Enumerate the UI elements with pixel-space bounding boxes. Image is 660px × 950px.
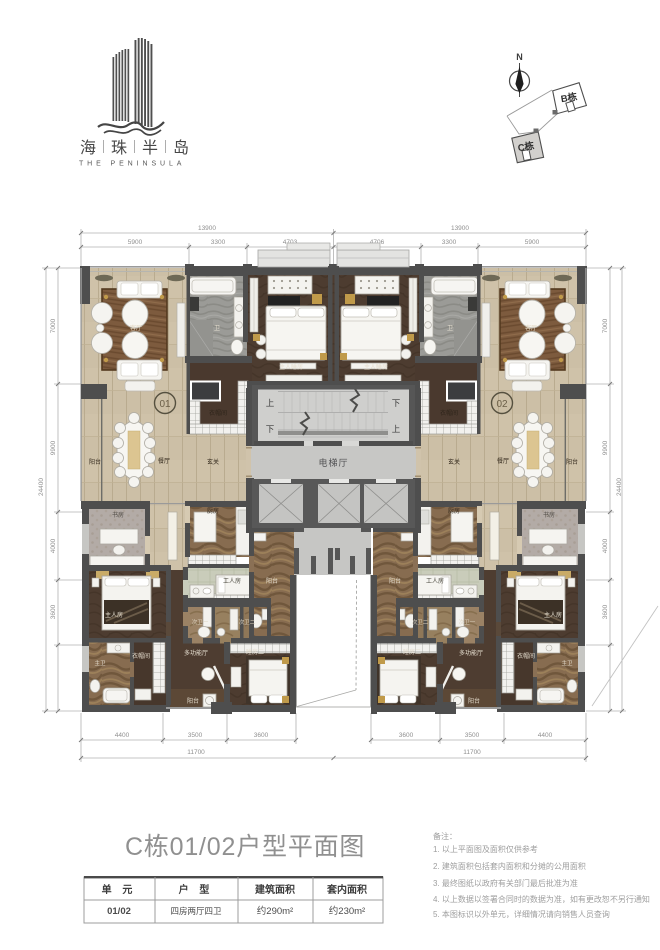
svg-text:7000: 7000 <box>50 318 57 333</box>
svg-text:厨房: 厨房 <box>448 507 460 515</box>
svg-text:1. 以上平面图及面积仅供参考: 1. 以上平面图及面积仅供参考 <box>433 844 538 854</box>
svg-text:玄关: 玄关 <box>448 458 460 466</box>
svg-text:4400: 4400 <box>538 732 553 739</box>
svg-text:约290m²: 约290m² <box>257 905 293 917</box>
svg-text:主人睡房: 主人睡房 <box>279 363 303 371</box>
svg-text:次卫一: 次卫一 <box>459 618 476 626</box>
svg-text:2. 建筑面积包括套内面积和分摊的公用面积: 2. 建筑面积包括套内面积和分摊的公用面积 <box>433 861 586 871</box>
svg-text:约230m²: 约230m² <box>329 905 365 917</box>
svg-text:次卫二: 次卫二 <box>412 618 429 626</box>
svg-text:5900: 5900 <box>525 239 540 246</box>
svg-text:睡房二: 睡房二 <box>403 648 421 656</box>
svg-text:单 元: 单 元 <box>102 883 137 896</box>
svg-text:5. 本图标识以外单元，详细情况请向销售人员查询: 5. 本图标识以外单元，详细情况请向销售人员查询 <box>433 909 610 919</box>
svg-text:3600: 3600 <box>602 604 609 619</box>
svg-text:主人房: 主人房 <box>544 611 562 619</box>
svg-text:11700: 11700 <box>187 749 205 756</box>
svg-text:衣帽间: 衣帽间 <box>132 652 150 660</box>
svg-text:餐厅: 餐厅 <box>497 457 509 465</box>
svg-text:餐厅: 餐厅 <box>158 457 170 465</box>
svg-text:上: 上 <box>266 398 275 408</box>
svg-text:客厅: 客厅 <box>525 324 537 332</box>
svg-text:工人房: 工人房 <box>426 577 444 585</box>
svg-text:次卫一: 次卫一 <box>192 618 209 626</box>
svg-text:5900: 5900 <box>128 239 143 246</box>
svg-text:衣帽间: 衣帽间 <box>440 409 458 417</box>
svg-text:四房两厅四卫: 四房两厅四卫 <box>170 906 222 916</box>
svg-text:阳台: 阳台 <box>187 697 199 705</box>
svg-text:阳台: 阳台 <box>566 458 578 466</box>
svg-text:海珠半岛: 海珠半岛 <box>80 139 204 157</box>
svg-text:9900: 9900 <box>50 440 57 455</box>
svg-text:户 型: 户 型 <box>178 883 214 896</box>
svg-text:套内面积: 套内面积 <box>326 883 367 896</box>
svg-text:3300: 3300 <box>442 239 457 246</box>
svg-text:4400: 4400 <box>115 732 130 739</box>
svg-text:3600: 3600 <box>50 604 57 619</box>
svg-text:书房: 书房 <box>543 511 555 519</box>
svg-text:衣帽间: 衣帽间 <box>517 652 535 660</box>
svg-text:4000: 4000 <box>50 538 57 553</box>
svg-text:9900: 9900 <box>602 440 609 455</box>
svg-text:3300: 3300 <box>211 239 226 246</box>
svg-text:上: 上 <box>392 424 401 434</box>
svg-text:阳台: 阳台 <box>266 577 278 585</box>
svg-text:24400: 24400 <box>38 478 45 496</box>
svg-text:书房: 书房 <box>112 511 124 519</box>
svg-text:客厅: 客厅 <box>130 324 142 332</box>
svg-text:01: 01 <box>159 399 171 410</box>
svg-text:01/02: 01/02 <box>107 906 131 917</box>
svg-text:3600: 3600 <box>254 732 269 739</box>
svg-text:阳台: 阳台 <box>468 697 480 705</box>
svg-text:3600: 3600 <box>399 732 414 739</box>
svg-text:备注：: 备注： <box>433 831 457 841</box>
svg-text:玄关: 玄关 <box>207 458 219 466</box>
svg-text:主卫: 主卫 <box>561 659 573 667</box>
svg-text:THE PENINSULA: THE PENINSULA <box>79 161 185 168</box>
svg-text:3500: 3500 <box>188 732 203 739</box>
svg-text:卫: 卫 <box>214 325 220 332</box>
svg-text:7000: 7000 <box>602 318 609 333</box>
svg-text:4000: 4000 <box>602 538 609 553</box>
svg-text:睡房二: 睡房二 <box>246 648 264 656</box>
svg-text:主人睡房: 主人睡房 <box>364 363 388 371</box>
svg-text:厨房: 厨房 <box>207 507 219 515</box>
svg-text:下: 下 <box>266 424 275 434</box>
svg-text:主人房: 主人房 <box>105 611 123 619</box>
svg-text:11700: 11700 <box>463 749 481 756</box>
svg-text:C栋01/02户型平面图: C栋01/02户型平面图 <box>125 833 365 861</box>
svg-text:阳台: 阳台 <box>389 577 401 585</box>
svg-text:13900: 13900 <box>451 225 469 232</box>
svg-text:多功能厅: 多功能厅 <box>459 649 483 657</box>
svg-text:主卫: 主卫 <box>94 659 106 667</box>
svg-text:建筑面积: 建筑面积 <box>254 883 295 896</box>
svg-text:工人房: 工人房 <box>223 577 241 585</box>
svg-text:02: 02 <box>496 399 508 410</box>
svg-text:多功能厅: 多功能厅 <box>184 649 208 657</box>
svg-text:次卫二: 次卫二 <box>239 618 256 626</box>
svg-text:衣帽间: 衣帽间 <box>209 409 227 417</box>
svg-text:13900: 13900 <box>198 225 216 232</box>
svg-text:3500: 3500 <box>465 732 480 739</box>
svg-text:24400: 24400 <box>616 478 623 496</box>
svg-text:3. 最终图纸以政府有关部门最后批准为准: 3. 最终图纸以政府有关部门最后批准为准 <box>433 878 578 888</box>
svg-text:阳台: 阳台 <box>89 458 101 466</box>
svg-text:卫: 卫 <box>447 325 453 332</box>
svg-text:下: 下 <box>392 398 401 408</box>
svg-text:N: N <box>516 52 523 62</box>
svg-text:电梯厅: 电梯厅 <box>318 457 348 468</box>
svg-text:4. 以上数据以签署合同时的数据为准，如有更改恕不另行通知: 4. 以上数据以签署合同时的数据为准，如有更改恕不另行通知 <box>433 894 650 904</box>
